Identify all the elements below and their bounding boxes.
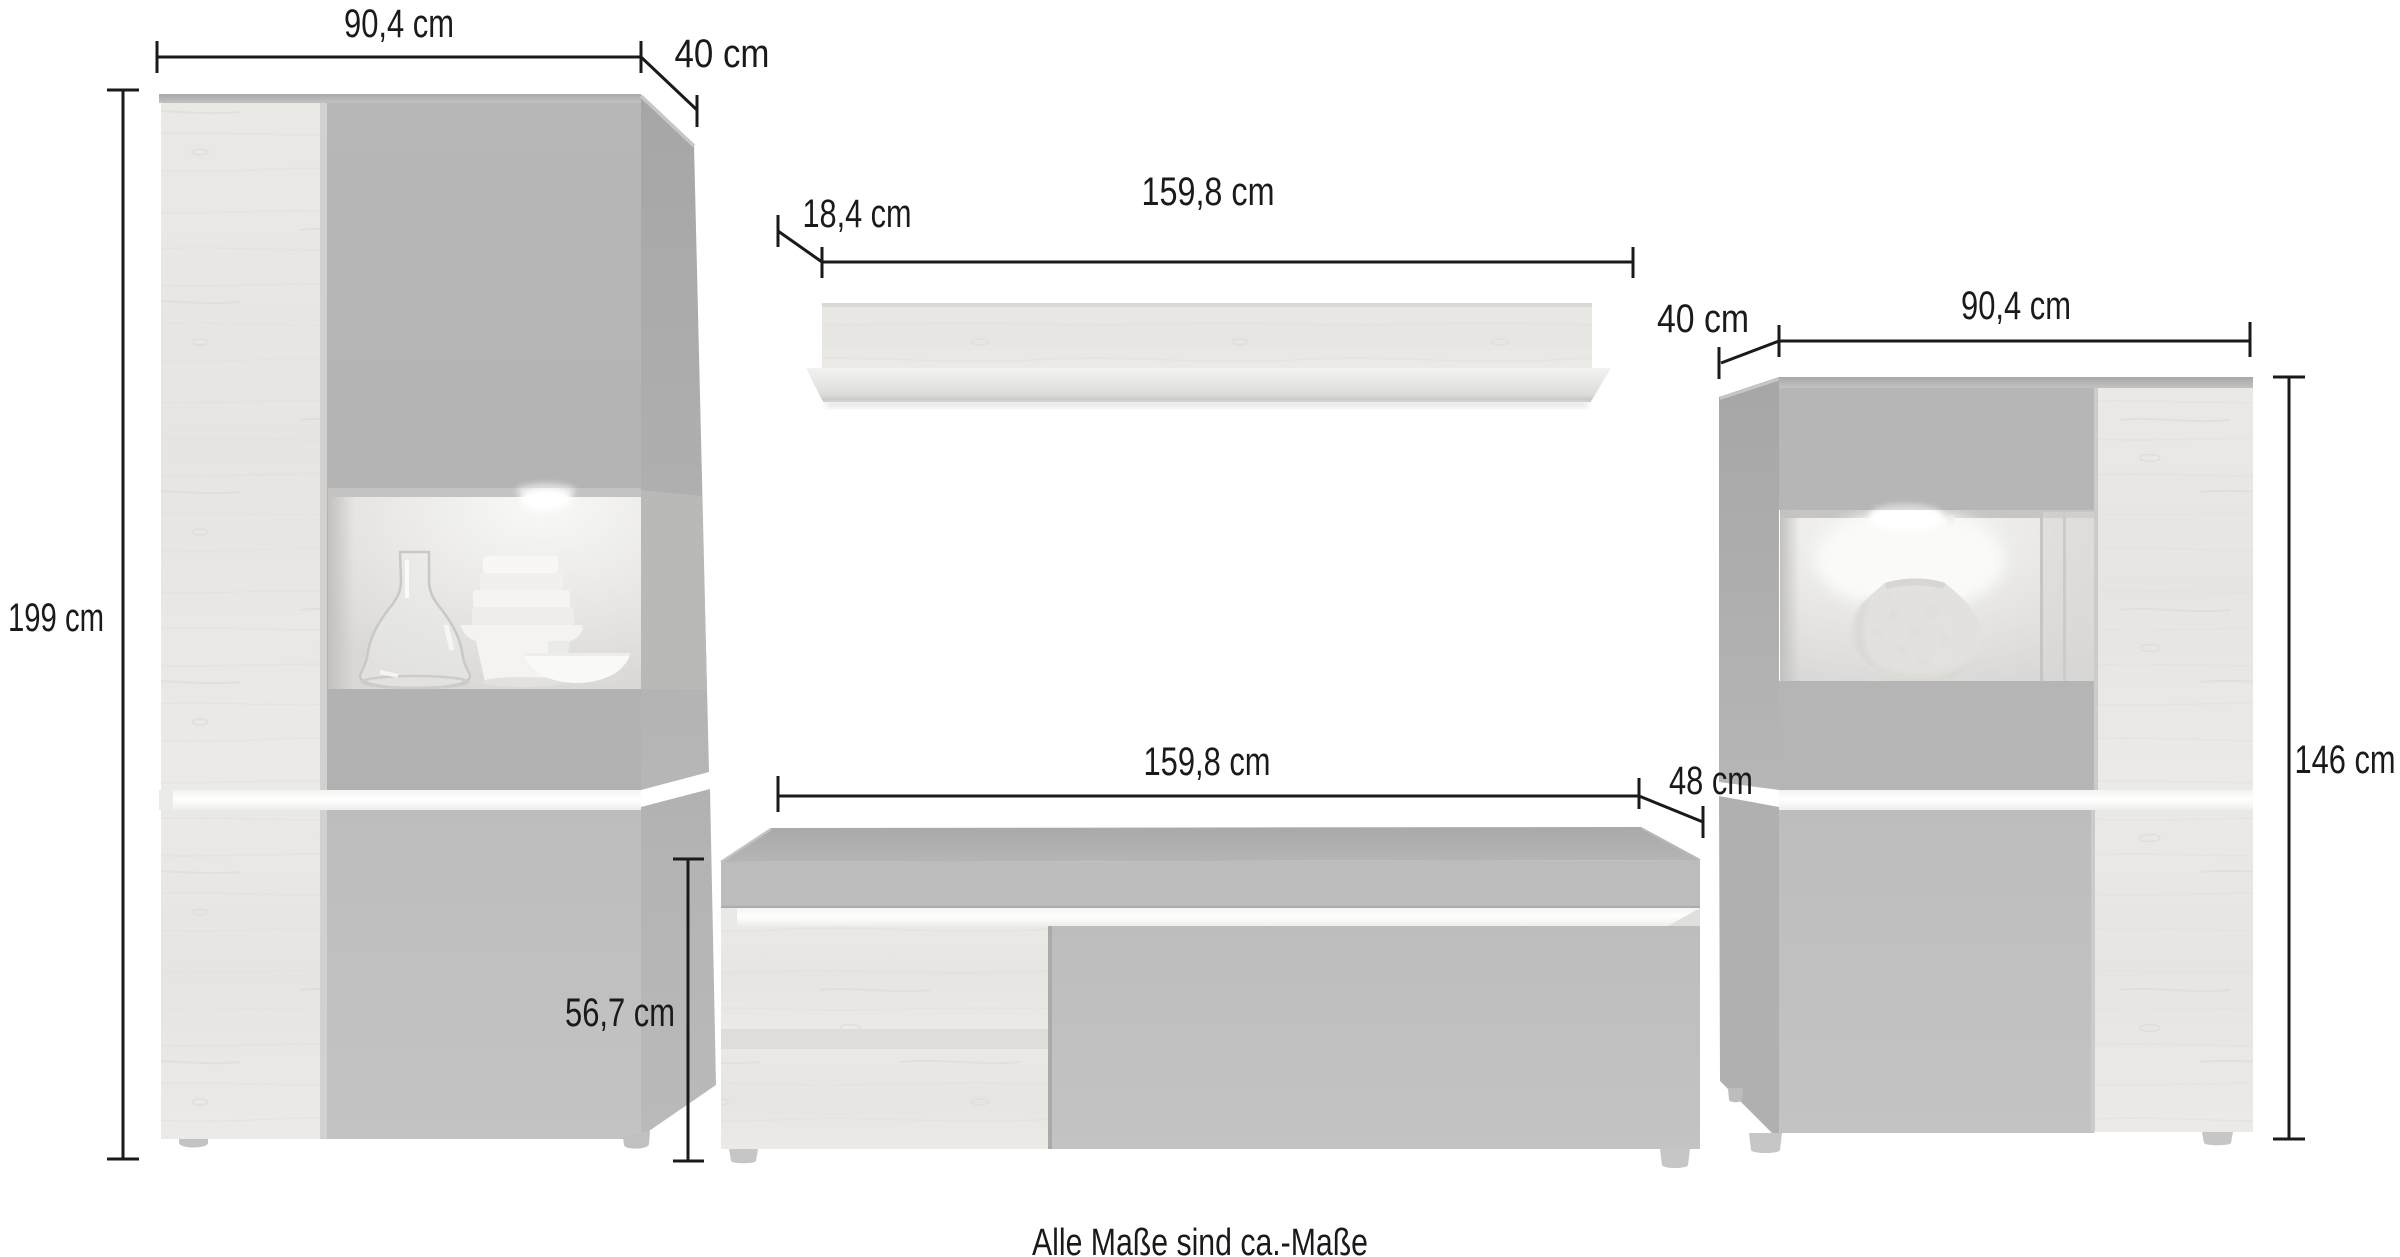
svg-text:Alle Maße sind ca.-Maße: Alle Maße sind ca.-Maße [1032, 1222, 1368, 1257]
svg-text:146 cm: 146 cm [2295, 738, 2396, 782]
svg-text:40 cm: 40 cm [1657, 297, 1749, 341]
svg-text:199 cm: 199 cm [8, 596, 104, 640]
svg-text:40 cm: 40 cm [675, 32, 770, 76]
svg-text:48 cm: 48 cm [1669, 759, 1753, 803]
svg-text:159,8 cm: 159,8 cm [1144, 740, 1271, 784]
svg-text:90,4 cm: 90,4 cm [344, 2, 454, 46]
svg-text:90,4 cm: 90,4 cm [1961, 284, 2071, 328]
svg-text:56,7 cm: 56,7 cm [565, 991, 675, 1035]
svg-text:18,4 cm: 18,4 cm [803, 192, 912, 236]
svg-text:159,8 cm: 159,8 cm [1142, 170, 1275, 214]
